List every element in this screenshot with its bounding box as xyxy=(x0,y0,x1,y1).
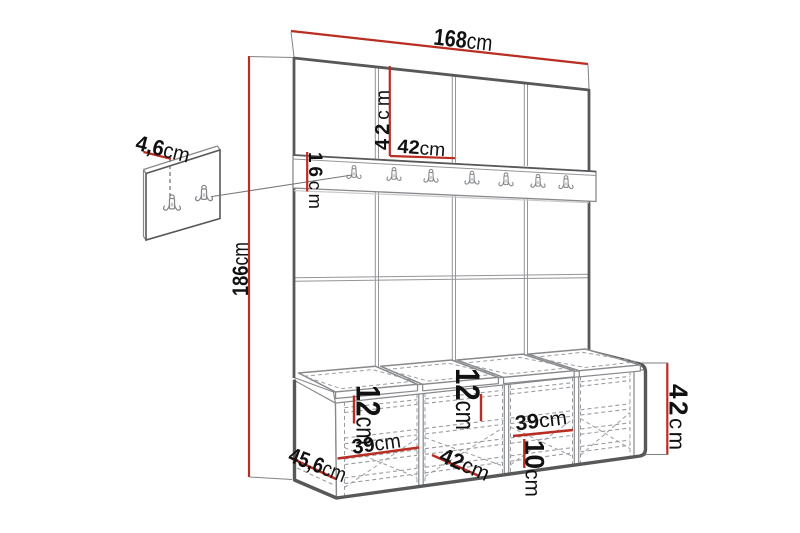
svg-text:186cm: 186cm xyxy=(228,242,253,296)
svg-text:42cm: 42cm xyxy=(372,90,394,150)
svg-text:10cm: 10cm xyxy=(520,440,550,497)
svg-text:16cm: 16cm xyxy=(304,152,326,209)
svg-text:168cm: 168cm xyxy=(432,24,493,56)
svg-text:4,6cm: 4,6cm xyxy=(133,130,192,168)
svg-text:42cm: 42cm xyxy=(397,136,447,162)
